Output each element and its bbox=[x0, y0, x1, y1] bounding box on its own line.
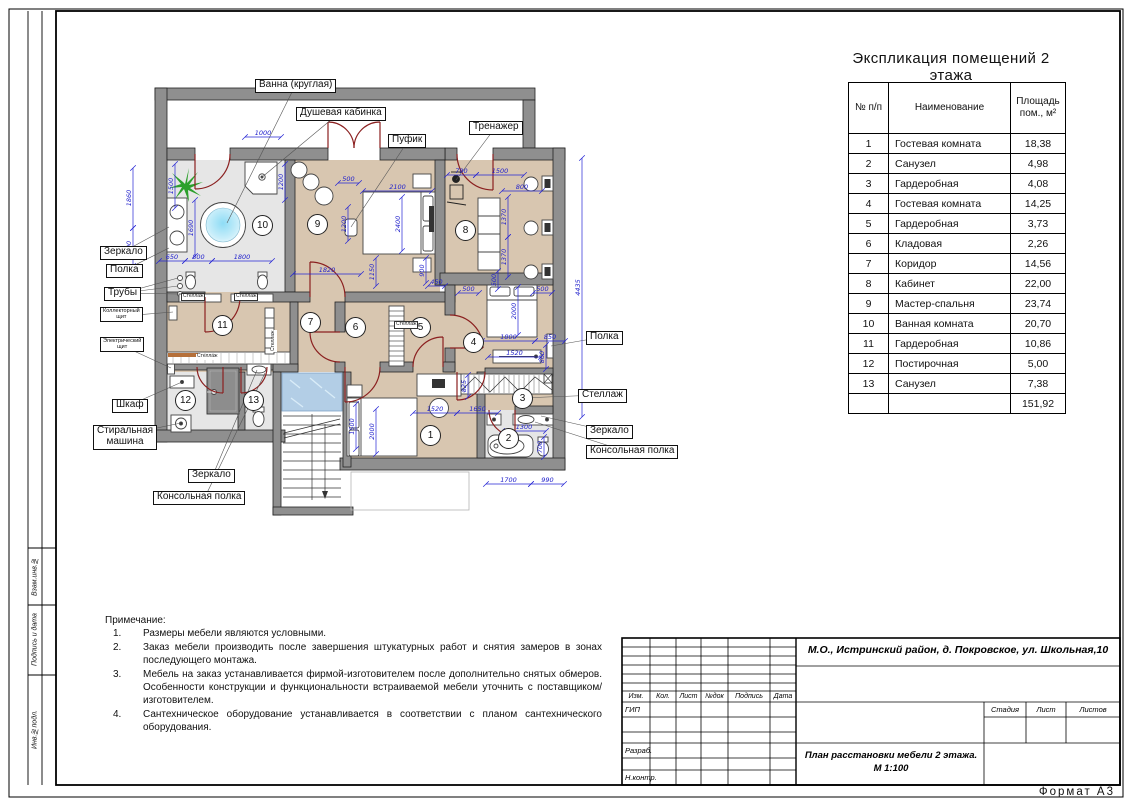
tb-col-header: №док bbox=[701, 693, 728, 700]
frame-label-podpis: Подпись и дата bbox=[28, 605, 42, 675]
doc-title: План расстановки мебели 2 этажа. М 1:100 bbox=[798, 750, 984, 776]
tb-col-header: Изм. bbox=[622, 693, 650, 700]
title-block-address: М.О., Истринский район, д. Покровское, у… bbox=[798, 644, 1118, 656]
tb-col-header: Лист bbox=[676, 693, 701, 700]
table-header: Площадь пом., м² bbox=[1011, 83, 1066, 134]
callout-label: Полка bbox=[106, 264, 143, 278]
tb-nkontr: Н.контр. bbox=[625, 773, 657, 782]
tb-col-header: Кол. bbox=[650, 693, 676, 700]
room-number: 4 bbox=[463, 332, 484, 353]
note-item: 4.Сантехническое оборудование устанавлив… bbox=[105, 708, 602, 735]
table-row: 5Гардеробная3,73 bbox=[849, 214, 1066, 234]
frame-label-vzam: Взам.инв.№ bbox=[28, 548, 42, 605]
table-row: 4Гостевая комната14,25 bbox=[849, 194, 1066, 214]
table-title: Экспликация помещений 2 этажа bbox=[830, 50, 1072, 84]
room-number: 7 bbox=[300, 312, 321, 333]
tb-sheets: Листов bbox=[1066, 705, 1120, 714]
room-number: 6 bbox=[345, 317, 366, 338]
note-item: 2.Заказ мебели производить после заверше… bbox=[105, 641, 602, 668]
table-row: 7Коридор14,56 bbox=[849, 254, 1066, 274]
callout-label: Стеллаж bbox=[578, 389, 627, 403]
table-row: 9Мастер-спальня23,74 bbox=[849, 294, 1066, 314]
table-row: 1Гостевая комната18,38 bbox=[849, 134, 1066, 154]
tb-razrab: Разраб. bbox=[625, 746, 652, 755]
drawing-sheet: 1860900150016906508001800100012005002100… bbox=[0, 0, 1132, 800]
table-row: 12Постирочная5,00 bbox=[849, 354, 1066, 374]
room-number: 9 bbox=[307, 214, 328, 235]
callout-label: Шкаф bbox=[112, 399, 148, 413]
format-label: Формат А3 bbox=[930, 786, 1115, 798]
table-header: № п/п bbox=[849, 83, 889, 134]
callout-label: Тренажер bbox=[469, 121, 523, 135]
plan-annotations: Ванна (круглая)Душевая кабинкаПуфикТрена… bbox=[95, 80, 695, 540]
callout-label: Зеркало bbox=[586, 425, 633, 439]
callout-label: Стиральная машина bbox=[93, 425, 157, 450]
room-number: 10 bbox=[252, 215, 273, 236]
note-item: 1.Размеры мебели являются условными. bbox=[105, 627, 602, 640]
table-row: 10Ванная комната20,70 bbox=[849, 314, 1066, 334]
room-number: 3 bbox=[512, 388, 533, 409]
room-number: 1 bbox=[420, 425, 441, 446]
frame-label-inv: Инв.№подл. bbox=[28, 675, 42, 785]
tb-gip: ГИП bbox=[625, 705, 640, 714]
room-number: 12 bbox=[175, 390, 196, 411]
shelf-label: Стеллаж bbox=[181, 293, 205, 301]
callout-label: Ванна (круглая) bbox=[255, 79, 336, 93]
room-number: 2 bbox=[498, 428, 519, 449]
table-row: 6Кладовая2,26 bbox=[849, 234, 1066, 254]
table-row: 8Кабинет22,00 bbox=[849, 274, 1066, 294]
callout-label: Консольная полка bbox=[586, 445, 678, 459]
callout-label: Пуфик bbox=[388, 134, 426, 148]
shelf-label: Стеллаж bbox=[394, 321, 418, 329]
tb-stage: Стадия bbox=[984, 705, 1026, 714]
room-schedule-table: № п/пНаименованиеПлощадь пом., м²1Гостев… bbox=[848, 82, 1066, 414]
table-total-row: 151,92 bbox=[849, 394, 1066, 414]
tb-col-header: Подпись bbox=[728, 693, 770, 700]
shelf-label: Стеллаж bbox=[271, 330, 277, 352]
notes-heading: Примечание: bbox=[105, 614, 602, 627]
floor-plan: 1860900150016906508001800100012005002100… bbox=[95, 80, 695, 540]
table-header: Наименование bbox=[889, 83, 1011, 134]
room-number: 13 bbox=[243, 390, 264, 411]
shelf-label: Стеллаж bbox=[196, 354, 218, 360]
callout-label: Консольная полка bbox=[153, 491, 245, 505]
callout-label: Электрический щит bbox=[100, 337, 144, 352]
notes-block: Примечание: 1.Размеры мебели являются ус… bbox=[105, 614, 602, 735]
note-item: 3.Мебель на заказ устанавливается фирмой… bbox=[105, 668, 602, 708]
callout-label: Коллекторный щит bbox=[100, 307, 143, 322]
tb-col-header: Дата bbox=[770, 693, 796, 700]
room-number: 8 bbox=[455, 220, 476, 241]
shelf-label: Стеллаж bbox=[234, 293, 258, 301]
callout-label: Трубы bbox=[104, 287, 141, 301]
callout-label: Зеркало bbox=[188, 469, 235, 483]
table-row: 13Санузел7,38 bbox=[849, 374, 1066, 394]
table-row: 2Санузел4,98 bbox=[849, 154, 1066, 174]
room-number: 11 bbox=[212, 315, 233, 336]
callout-label: Душевая кабинка bbox=[296, 107, 386, 121]
table-row: 11Гардеробная10,86 bbox=[849, 334, 1066, 354]
callout-label: Полка bbox=[586, 331, 623, 345]
callout-label: Зеркало bbox=[100, 246, 147, 260]
table-row: 3Гардеробная4,08 bbox=[849, 174, 1066, 194]
tb-sheet: Лист bbox=[1026, 705, 1066, 714]
